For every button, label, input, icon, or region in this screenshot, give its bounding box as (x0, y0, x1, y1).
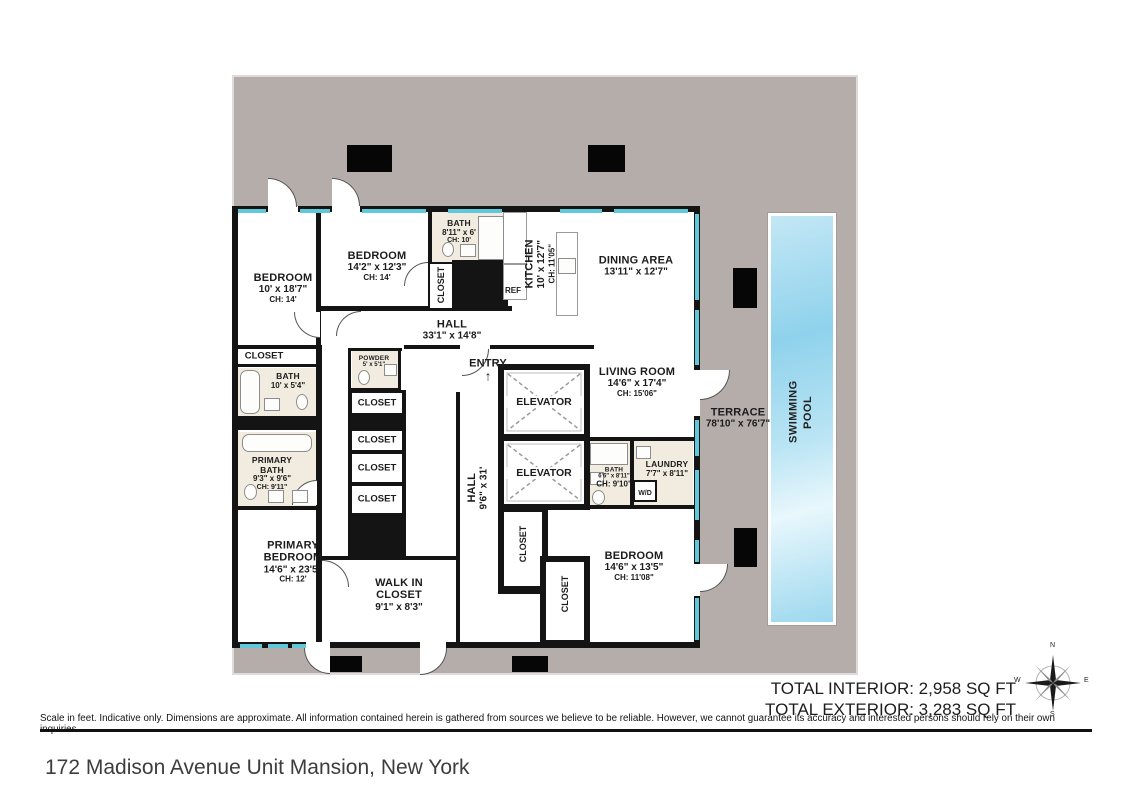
elevator-cab: ELEVATOR (504, 441, 584, 504)
sink-icon (460, 244, 476, 257)
wall (320, 556, 460, 560)
window (362, 209, 426, 213)
room-label-hall-s: HALL 9'6" x 31' (466, 467, 490, 510)
room-label-primary-bedroom: PRIMARY BEDROOM 14'6" x 23'5" CH: 12' (246, 540, 340, 585)
fridge-label: REF (505, 286, 521, 295)
sink-icon (292, 490, 308, 503)
column (347, 145, 392, 172)
window (695, 540, 699, 562)
bathtub-icon (242, 434, 312, 452)
room-label-laundry: LAUNDRY 7'7" x 8'11" (646, 460, 689, 478)
room-label-bath-n: BATH 8'11" x 6' CH: 10' (442, 219, 476, 245)
wall (348, 348, 351, 391)
window (695, 214, 699, 300)
window (695, 310, 699, 365)
wall (428, 206, 432, 264)
column (733, 268, 757, 308)
window (614, 209, 688, 213)
compass-star-icon (1016, 645, 1090, 721)
elevator-label: ELEVATOR (504, 396, 584, 408)
wall (234, 416, 320, 430)
column (734, 528, 757, 567)
window (560, 209, 602, 213)
shower-icon (478, 216, 504, 260)
toilet-icon (296, 394, 308, 410)
stove-icon (558, 258, 576, 274)
kitchen-island (556, 232, 578, 316)
wall (316, 306, 512, 311)
window (695, 470, 699, 520)
window (268, 644, 288, 648)
room-label-bedroom-s: BEDROOM 14'6" x 13'5" CH: 11'08" (605, 550, 664, 582)
shower-icon (590, 443, 628, 465)
wall (348, 348, 402, 351)
sink-icon (264, 398, 280, 411)
room-label-entry: ENTRY ↑ (469, 357, 507, 382)
wall (234, 345, 320, 349)
room-label-bedroom-w: BEDROOM 10' x 18'7" CH: 14' (254, 272, 313, 304)
room-label-powder: POWDER 5' x 5'1" (359, 355, 389, 369)
closet-label: CLOSET (560, 576, 570, 613)
door-opening (332, 206, 360, 212)
closet-label: CLOSET (518, 526, 528, 563)
closet-label: CLOSET (436, 267, 446, 304)
wall (234, 364, 316, 367)
room-label-bedroom-n: BEDROOM 14'2" x 12'3" CH: 14' (348, 250, 407, 282)
room-label-bath-s: BATH 6'6" x 8'11" CH: 9'10" (596, 467, 631, 490)
total-interior: TOTAL INTERIOR: 2,958 SQ FT (640, 678, 1016, 699)
compass-rose-icon: N E S W (1016, 645, 1090, 721)
room-label-dining: DINING AREA 13'11" x 12'7" (599, 254, 674, 278)
laundry-sink-icon (636, 446, 651, 459)
closet-label: CLOSET (358, 398, 397, 409)
closet-label: CLOSET (358, 494, 397, 505)
compass-n-label: N (1050, 642, 1055, 649)
room-label-bath-w: BATH 10' x 5'4" (271, 372, 305, 390)
wall (404, 345, 594, 349)
elevator-cab: ELEVATOR (504, 370, 584, 434)
sink-icon (268, 490, 284, 503)
toilet-icon (358, 370, 370, 385)
window (238, 209, 266, 213)
wall (452, 260, 508, 310)
compass-e-label: E (1084, 677, 1089, 684)
entry-arrow-icon: ↑ (469, 370, 507, 383)
closet-label: CLOSET (245, 351, 284, 362)
room-label-living: LIVING ROOM 14'6" x 17'4" CH: 15'06" (599, 366, 675, 398)
page-title: 172 Madison Avenue Unit Mansion, New Yor… (45, 756, 470, 780)
wall (348, 515, 406, 556)
bathtub-icon (240, 370, 260, 414)
compass-w-label: W (1014, 677, 1021, 684)
window (695, 420, 699, 456)
room-label-terrace: TERRACE 78'10" x 76'7" (706, 406, 770, 430)
pool-label: SWIMMING POOL (787, 369, 816, 455)
room-label-hall-n: HALL 33'1" x 14'8" (423, 318, 482, 342)
room-label-kitchen: KITCHEN 10' x 12'7" CH: 11'05" (523, 240, 556, 289)
wall (234, 506, 320, 510)
closet-label: CLOSET (358, 435, 397, 446)
window (300, 209, 330, 213)
washer-dryer: W/D (633, 480, 657, 502)
room-label-walk-in-closet: WALK IN CLOSET 9'1" x 8'3" (363, 577, 435, 613)
washer-dryer-label: W/D (638, 490, 652, 497)
floorplan-page: SWIMMING POOL (0, 0, 1132, 800)
wall (585, 437, 695, 441)
window (240, 644, 262, 648)
toilet-icon (592, 490, 605, 505)
column (588, 145, 625, 172)
divider-rule (40, 729, 1092, 732)
closet-label: CLOSET (358, 463, 397, 474)
wall (538, 505, 695, 509)
column (512, 656, 548, 672)
wall (398, 348, 401, 391)
elevator-label: ELEVATOR (504, 467, 584, 479)
window (448, 209, 502, 213)
room-label-primary-bath: PRIMARY BATH 9'3" x 9'6" CH: 9'11" (241, 456, 303, 492)
wall (456, 392, 460, 644)
wall (585, 437, 589, 509)
window (695, 598, 699, 640)
